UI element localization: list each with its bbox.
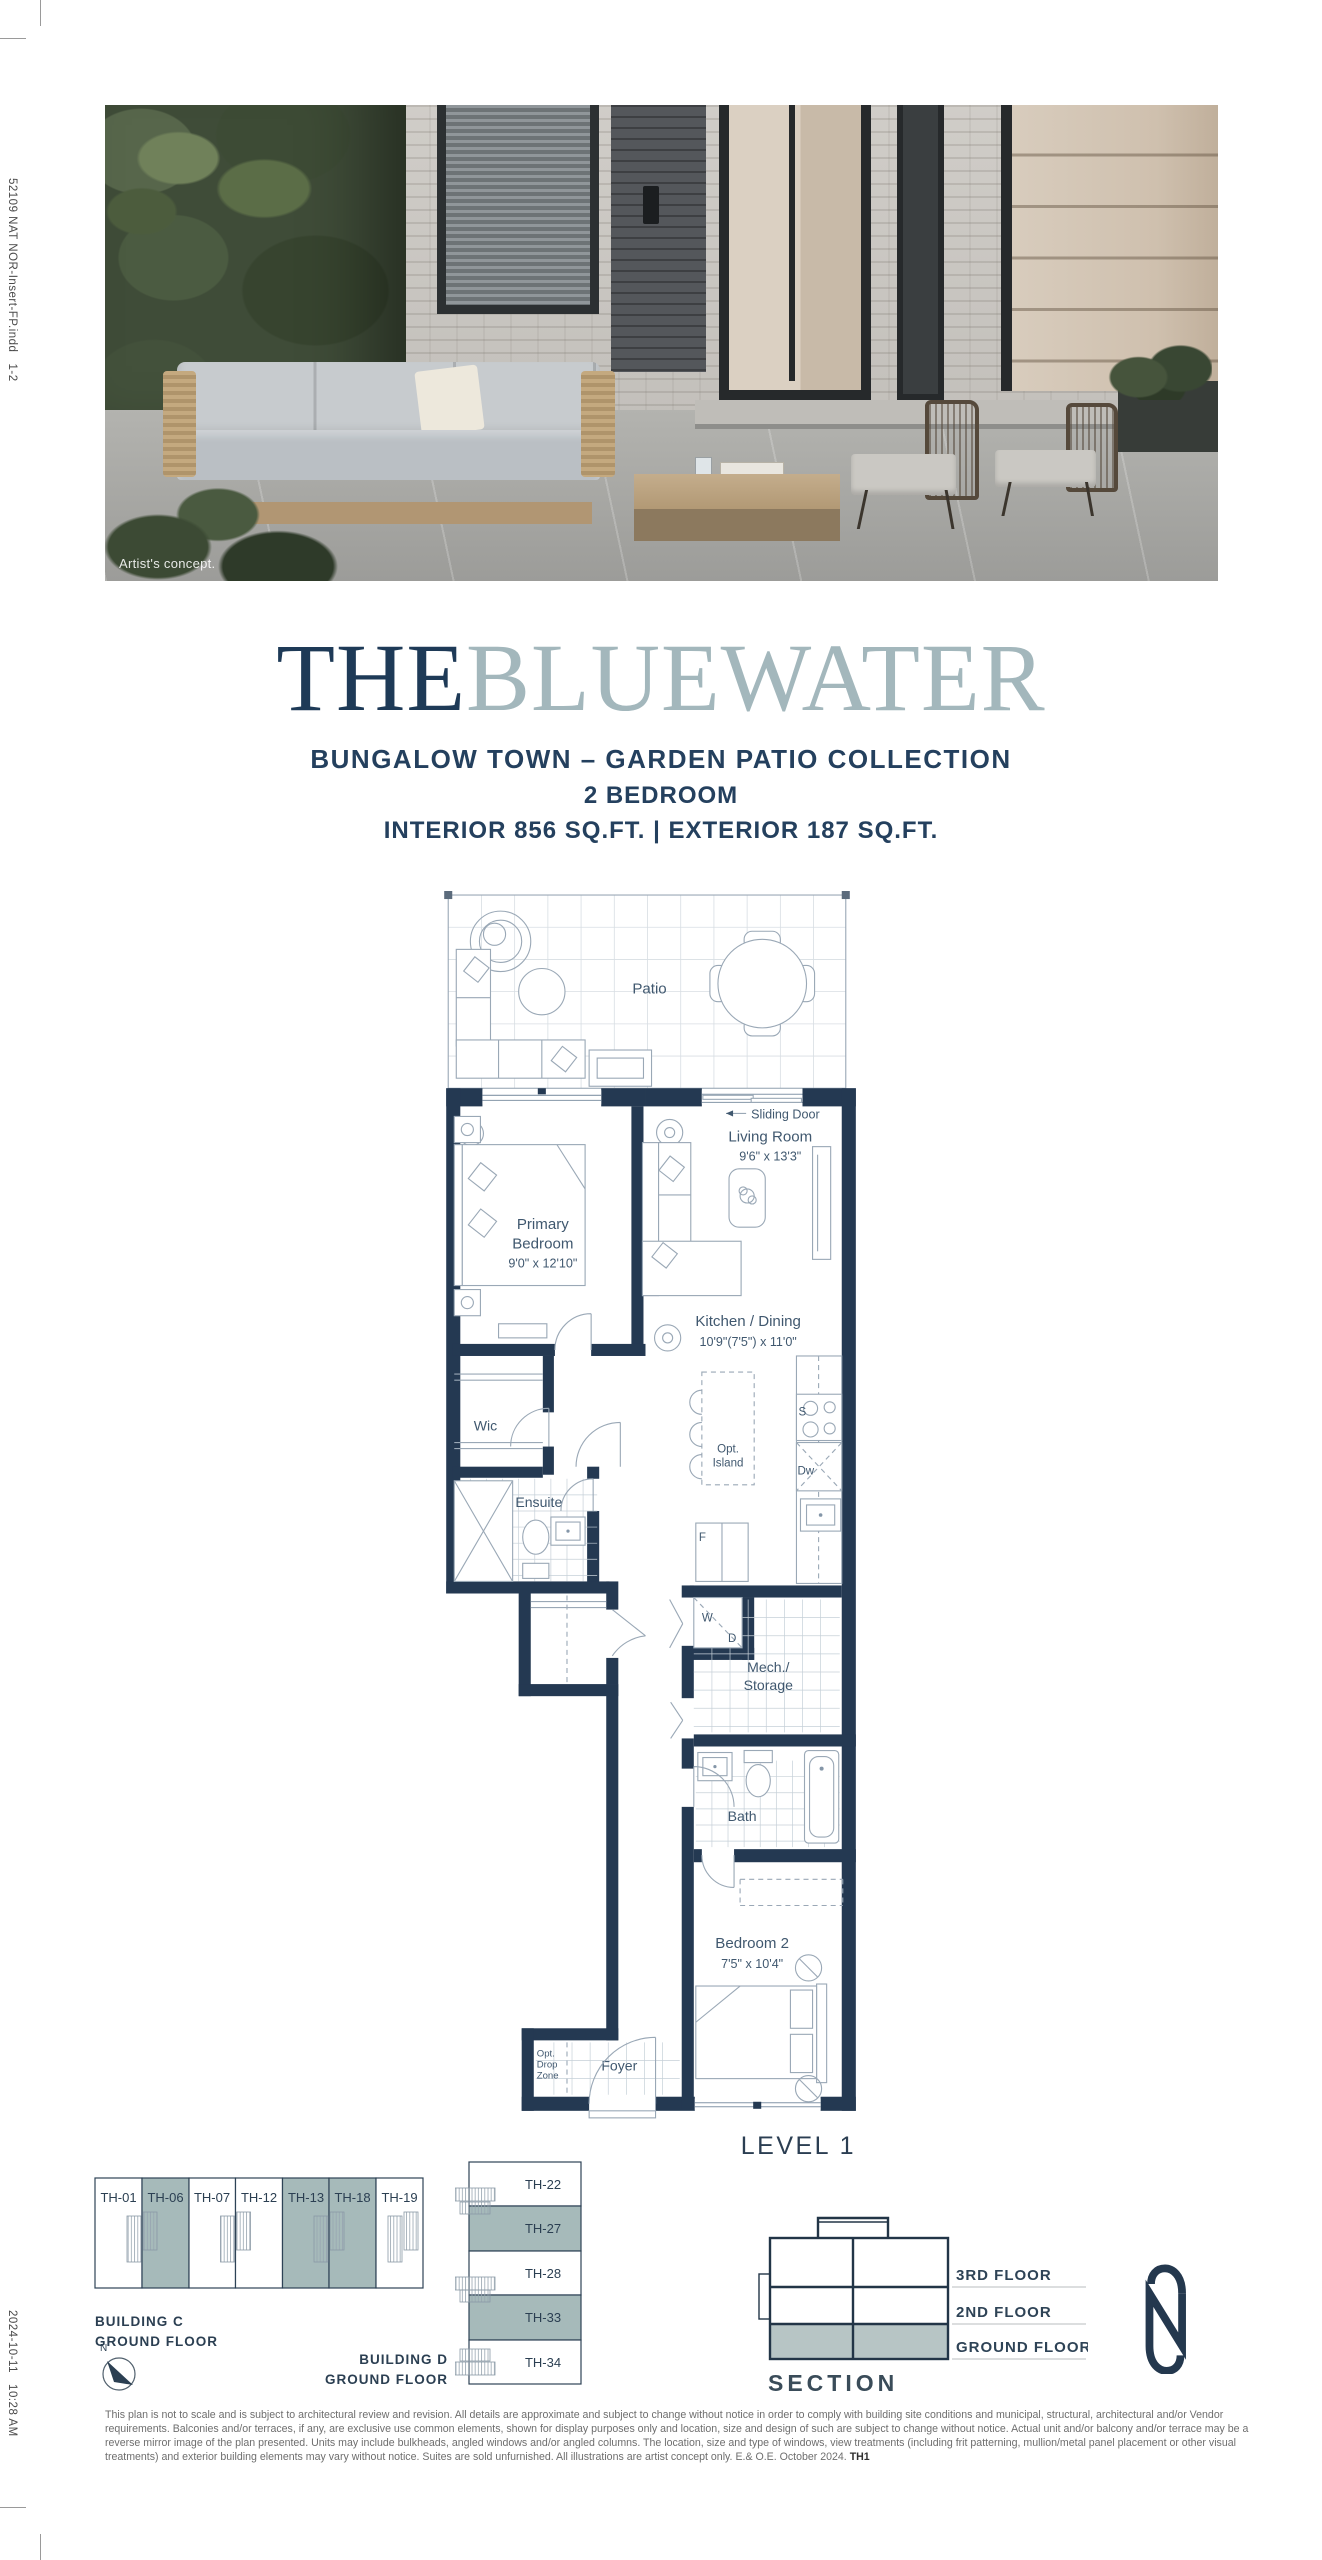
artist-concept-caption: Artist's concept. (119, 556, 215, 571)
floor2-label: 2ND FLOOR (956, 2304, 1052, 2321)
level-label: LEVEL 1 (600, 2132, 856, 2161)
unit-label: TH-33 (525, 2310, 561, 2325)
washer-label: W (702, 1613, 713, 1625)
compass: N (92, 2338, 144, 2400)
bedroom2-dims: 7'5" x 10'4" (721, 1957, 783, 1971)
ensuite: Ensuite (454, 1481, 585, 1582)
chair-leg (1002, 482, 1012, 516)
patio-dining-set (710, 931, 815, 1036)
crop-mark (40, 2534, 41, 2560)
unit-label: TH-13 (288, 2190, 324, 2205)
crop-mark (40, 0, 41, 26)
wall-sconce (643, 186, 660, 224)
primary-dims: 9'0" x 12'10" (508, 1256, 577, 1270)
sidelight-window (897, 105, 944, 400)
table-top (634, 474, 840, 509)
keyplan-building-c: TH-01 TH-06 TH-07 TH-12 TH-13 TH-18 TH-1… (92, 2168, 426, 2305)
compass-north-label: N (100, 2343, 107, 2354)
kitchen-dims: 10'9"(7'5") x 11'0" (700, 1335, 797, 1349)
ensuite-label: Ensuite (515, 1494, 562, 1510)
project-title: THEBLUEWATER (0, 630, 1322, 726)
tree-foliage (105, 105, 350, 257)
patio-area: Patio (444, 891, 850, 1088)
unit-code: TH1 (850, 2451, 870, 2463)
foyer: Opt. Drop Zone Foyer (537, 2042, 638, 2094)
kitchen-label: Kitchen / Dining (695, 1313, 801, 1330)
crop-mark (0, 38, 26, 39)
unit-label: TH-22 (525, 2177, 561, 2192)
wic-label: Wic (474, 1417, 497, 1433)
door-frame-mullion (789, 105, 795, 381)
dishwasher-label: Dw (797, 1466, 814, 1478)
foyer-label: Foyer (601, 2058, 637, 2074)
unit-label: TH-18 (334, 2190, 370, 2205)
section-diagram: 3RD FLOOR 2ND FLOOR GROUND FLOOR SECTION (756, 2204, 1088, 2399)
bath-label: Bath (728, 1808, 757, 1824)
living-label: Living Room (728, 1129, 812, 1146)
mech-label: Mech./ (747, 1659, 789, 1675)
print-slug-filename: 52109 NAT NOR-Insert-FP.indd 1-2 (6, 178, 18, 382)
sofa-arm-left (163, 371, 197, 477)
keyplan-building-d: TH-22 TH-27 TH-28 TH-33 TH-34 (455, 2158, 587, 2390)
ns-monogram-logo (1126, 2256, 1204, 2374)
fridge-label: F (699, 1532, 706, 1544)
walk-in-closet: Wic (454, 1374, 543, 1448)
unit-label: TH-07 (194, 2190, 230, 2205)
coffee-table (634, 474, 840, 541)
unit-label: TH-01 (100, 2190, 136, 2205)
dark-brick-band (611, 105, 706, 372)
bathroom: Bath (698, 1751, 839, 1844)
chair-leg (857, 490, 868, 529)
living-room: Sliding Door Living Room 9'6" x 13'3" (642, 1107, 830, 1295)
disclaimer-text: This plan is not to scale and is subject… (105, 2408, 1277, 2464)
unit-label: TH-12 (241, 2190, 277, 2205)
patio-post (444, 891, 452, 899)
sofa-back-cushions (177, 362, 600, 439)
patio-post (842, 891, 850, 899)
patio-step (589, 1050, 651, 1086)
bedroom-subtitle: 2 BEDROOM (0, 782, 1322, 810)
svg-text:Island: Island (713, 1458, 744, 1470)
svg-text:Zone: Zone (537, 2071, 559, 2082)
compass-needle (107, 2361, 133, 2385)
floor3-label: 3RD FLOOR (956, 2267, 1052, 2284)
primary-label: Primary (517, 1216, 569, 1233)
svg-text:Drop: Drop (537, 2060, 558, 2071)
unit-label: TH-27 (525, 2221, 561, 2236)
kitchen-dining: Kitchen / Dining 10'9"(7'5") x 11'0" S D… (655, 1313, 842, 1584)
window-with-blinds (437, 105, 599, 314)
sofa-pillow (415, 364, 486, 436)
unit-label: TH-19 (381, 2190, 417, 2205)
sofa-seat (177, 430, 600, 480)
hall-closet (531, 1596, 606, 1685)
door-swings (511, 1314, 734, 2104)
svg-text:Storage: Storage (744, 1677, 793, 1693)
ground-floor-fill (770, 2324, 948, 2359)
island-label: Opt. (717, 1444, 739, 1456)
collection-subtitle: BUNGALOW TOWN – GARDEN PATIO COLLECTION (0, 744, 1322, 775)
floor1-label: GROUND FLOOR (956, 2339, 1088, 2356)
patio-side-table (519, 968, 565, 1014)
sofa-arm-right (581, 371, 615, 477)
unit-label: TH-28 (525, 2266, 561, 2281)
primary-bedroom: Primary Bedroom 9'0" x 12'10" (454, 1116, 585, 1337)
table-side (634, 509, 840, 541)
patio-sofa (456, 949, 585, 1078)
dryer-label: D (728, 1633, 736, 1645)
stove-label: S (798, 1406, 806, 1418)
building-d-label: BUILDING D GROUND FLOOR (290, 2350, 448, 2391)
print-slug-timestamp: 2024-10-11 10:28 AM (6, 2310, 18, 2437)
crop-mark (0, 2507, 26, 2508)
sliding-door-label: Sliding Door (751, 1107, 820, 1121)
floorplan-svg: Patio (438, 891, 856, 2139)
hero-photo: Artist's concept. (105, 105, 1218, 581)
area-subtitle: INTERIOR 856 SQ.FT. | EXTERIOR 187 SQ.FT… (0, 817, 1322, 845)
bedroom-2: Bedroom 2 7'5" x 10'4" (696, 1879, 843, 2101)
section-side-ledge (759, 2274, 770, 2319)
glass-patio-door (719, 105, 870, 400)
outdoor-chair (995, 403, 1117, 517)
dropzone-label: Opt. (537, 2048, 555, 2059)
title-bluewater: BLUEWATER (466, 624, 1046, 731)
unit-label: TH-34 (525, 2355, 561, 2370)
bedroom2-label: Bedroom 2 (715, 1935, 789, 1952)
unit-label: TH-06 (147, 2190, 183, 2205)
title-the: THE (276, 624, 466, 731)
svg-text:Bedroom: Bedroom (512, 1235, 573, 1252)
living-dims: 9'6" x 13'3" (739, 1150, 801, 1164)
outdoor-chair (851, 400, 979, 529)
patio-label: Patio (632, 981, 666, 998)
floorplan: Patio (438, 891, 856, 2144)
section-title: SECTION (768, 2370, 898, 2396)
entry-threshold (589, 2111, 655, 2118)
planter-shrub (1107, 343, 1213, 400)
